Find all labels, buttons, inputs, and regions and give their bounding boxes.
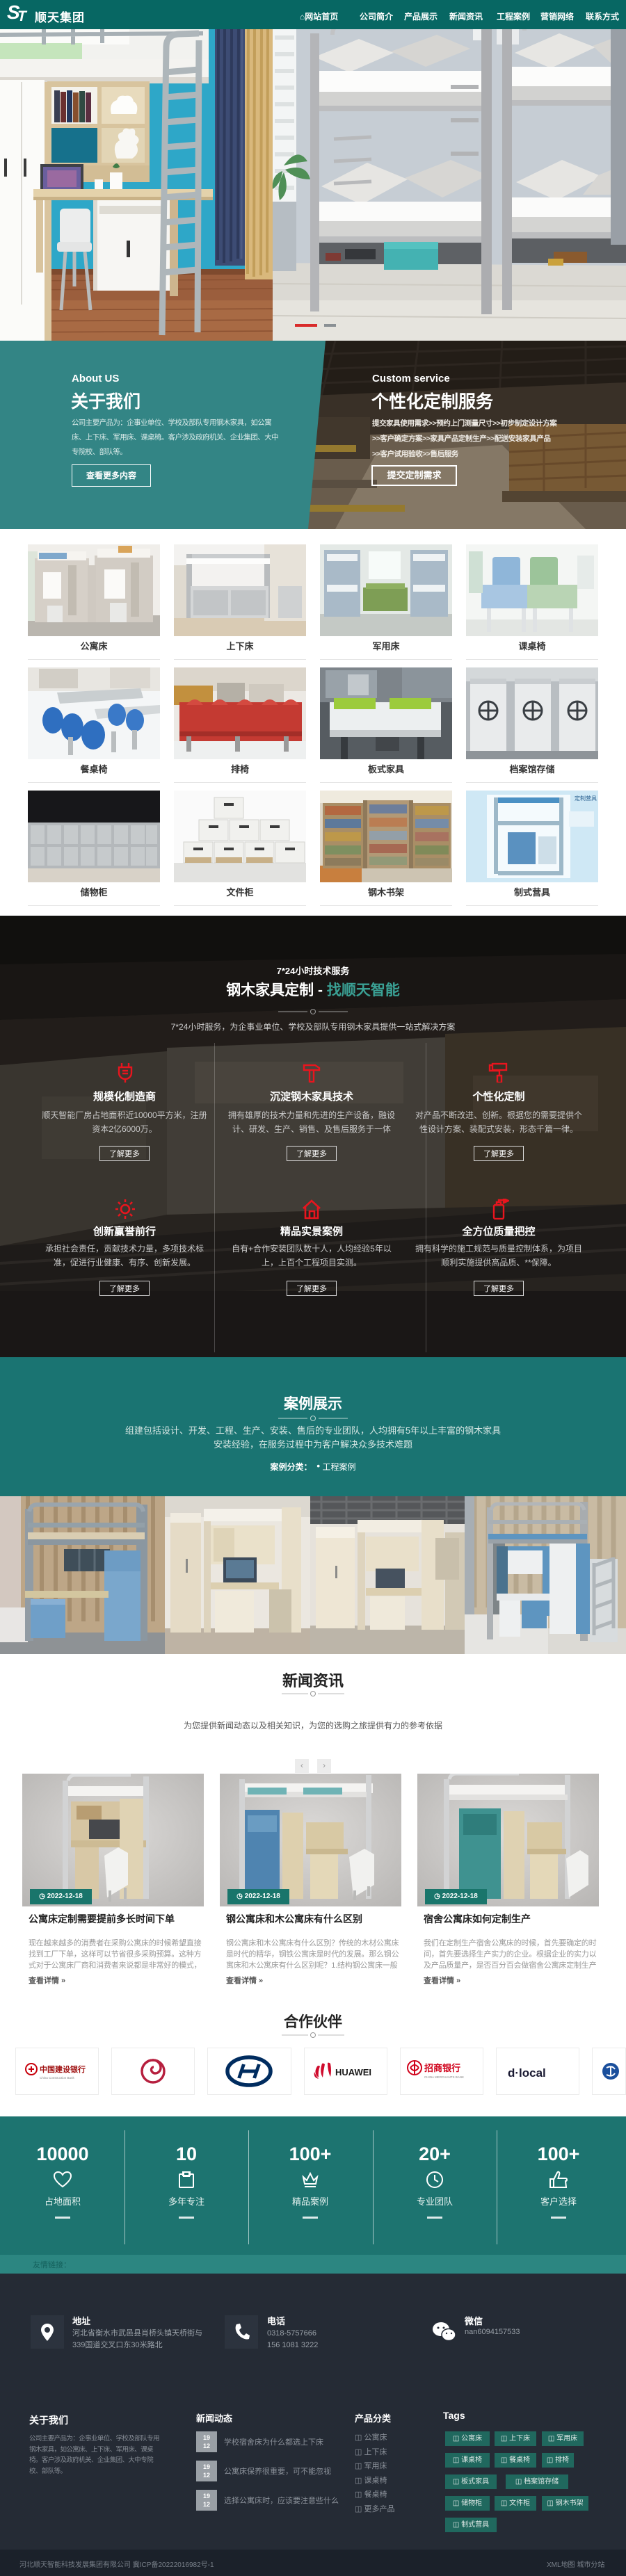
svg-text:招商银行: 招商银行 — [424, 2063, 460, 2073]
svg-text:HUAWEI: HUAWEI — [335, 2067, 371, 2077]
svg-text:d·local: d·local — [508, 2066, 546, 2080]
svg-text:中国建设银行: 中国建设银行 — [40, 2064, 86, 2074]
svg-text:定制营具: 定制营具 — [575, 795, 597, 802]
svg-text:China Construction Bank: China Construction Bank — [40, 2076, 75, 2080]
svg-text:CHINA MERCHANTS BANK: CHINA MERCHANTS BANK — [424, 2075, 464, 2079]
